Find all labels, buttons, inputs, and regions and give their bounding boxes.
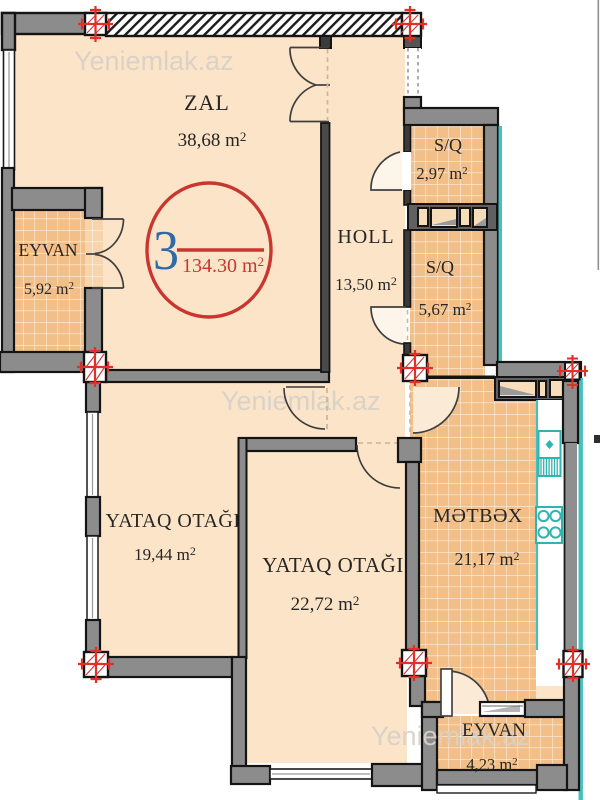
svg-text:S/Q: S/Q: [426, 257, 454, 277]
svg-text:4,23 m2: 4,23 m2: [466, 755, 517, 774]
svg-text:134.30 m2: 134.30 m2: [182, 254, 264, 277]
svg-text:S/Q: S/Q: [434, 135, 462, 155]
svg-text:5,67 m2: 5,67 m2: [419, 300, 472, 319]
svg-text:ZAL: ZAL: [184, 90, 230, 115]
svg-text:Yeniemlak.az: Yeniemlak.az: [74, 46, 234, 76]
svg-text:HOLL: HOLL: [337, 226, 394, 248]
svg-text:2,97 m2: 2,97 m2: [416, 164, 467, 183]
svg-text:22,72 m2: 22,72 m2: [291, 593, 360, 615]
svg-text:MƏTBƏX: MƏTBƏX: [433, 505, 523, 527]
svg-text:3: 3: [153, 220, 179, 282]
svg-text:EYVAN: EYVAN: [462, 720, 526, 741]
svg-text:EYVAN: EYVAN: [19, 240, 78, 260]
svg-text:YATAQ OTAĞI: YATAQ OTAĞI: [105, 509, 240, 532]
svg-text:5,92 m2: 5,92 m2: [24, 280, 74, 298]
svg-text:19,44 m2: 19,44 m2: [134, 544, 196, 564]
svg-text:Yeniemlak.az: Yeniemlak.az: [221, 386, 381, 416]
svg-text:13,50 m2: 13,50 m2: [335, 274, 397, 294]
svg-text:YATAQ OTAĞI: YATAQ OTAĞI: [262, 553, 404, 577]
svg-text:21,17 m2: 21,17 m2: [454, 549, 519, 569]
svg-text:38,68 m2: 38,68 m2: [178, 129, 247, 151]
